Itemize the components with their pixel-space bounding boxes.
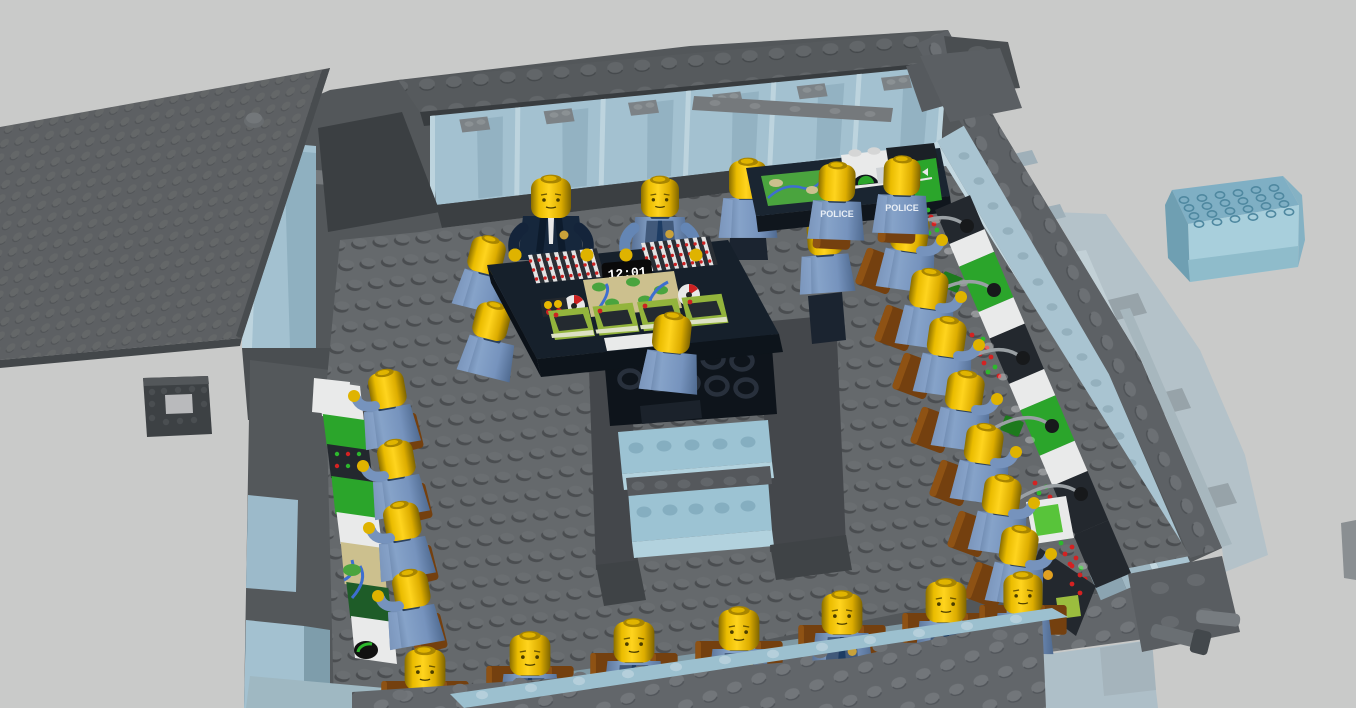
svg-text:POLICE: POLICE (820, 209, 854, 219)
svg-text:POLICE: POLICE (885, 203, 919, 213)
